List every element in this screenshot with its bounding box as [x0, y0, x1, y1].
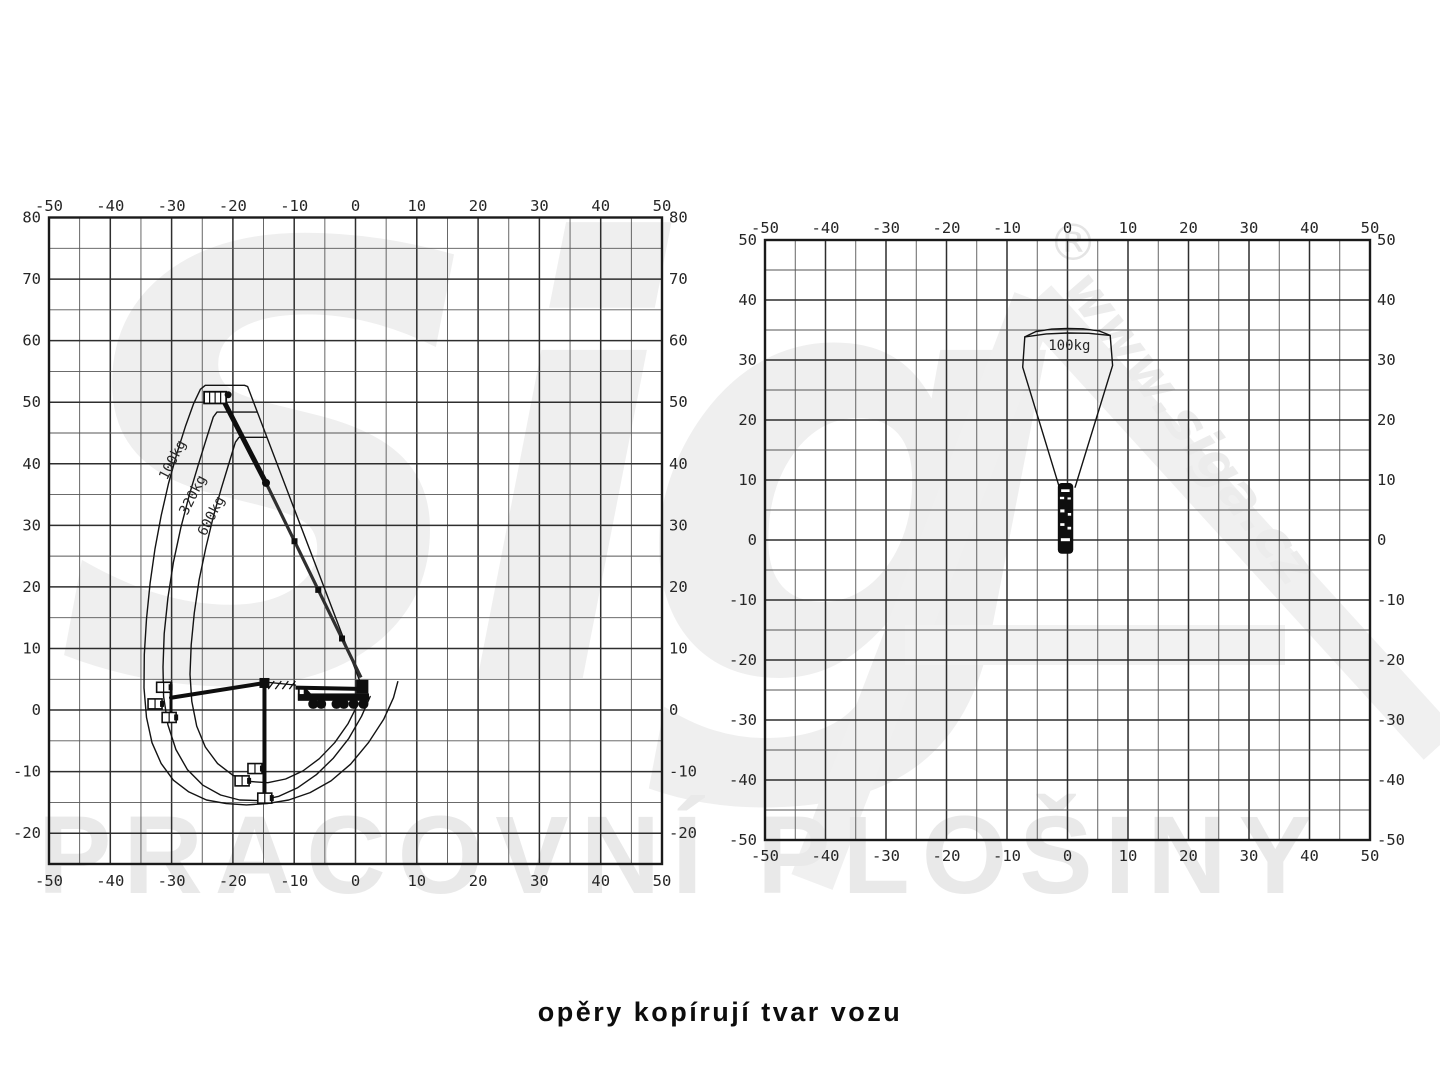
- y-tick-left: 60: [22, 332, 41, 350]
- y-tick-right: -30: [1377, 711, 1405, 729]
- load-label: 600kg: [195, 494, 228, 539]
- x-tick-bottom: 40: [591, 872, 610, 890]
- x-tick-top: 30: [530, 197, 549, 215]
- x-tick-top: 10: [407, 197, 426, 215]
- side-view-chart: -50-50-40-40-30-30-20-20-10-100010102020…: [13, 197, 697, 890]
- y-tick-left: 40: [738, 291, 757, 309]
- basket-mount: [260, 766, 264, 772]
- x-tick-top: -30: [872, 219, 900, 237]
- curve-320kg: [163, 412, 370, 800]
- y-tick-left: -10: [13, 763, 41, 781]
- y-tick-right: 40: [1377, 291, 1396, 309]
- truck-detail: [1068, 497, 1071, 499]
- curve-labels: 100kg: [1048, 338, 1090, 354]
- x-tick-bottom: -20: [933, 847, 961, 865]
- x-tick-bottom: -30: [872, 847, 900, 865]
- basket-mount: [247, 778, 251, 784]
- y-tick-left: 70: [22, 270, 41, 288]
- x-tick-top: -20: [219, 197, 247, 215]
- load-label: 100kg: [156, 438, 189, 483]
- x-tick-bottom: -30: [158, 872, 186, 890]
- x-tick-bottom: -10: [280, 872, 308, 890]
- y-tick-right: 80: [669, 209, 688, 227]
- top-view-chart: -50-50-40-40-30-30-20-20-10-100010102020…: [729, 219, 1405, 865]
- y-tick-left: 20: [738, 411, 757, 429]
- truck-detail: [1061, 489, 1069, 492]
- y-tick-right: 0: [1377, 531, 1386, 549]
- y-tick-right: -20: [669, 824, 697, 842]
- x-tick-bottom: -50: [751, 847, 779, 865]
- y-tick-left: -20: [729, 651, 757, 669]
- diagrams: -50-50-40-40-30-30-20-20-10-100010102020…: [0, 0, 1440, 1080]
- x-tick-bottom: -40: [812, 847, 840, 865]
- jib-joint: [259, 678, 269, 688]
- stowed-boom: [295, 688, 358, 689]
- truck-top-view: [1058, 483, 1073, 554]
- y-tick-left: -20: [13, 824, 41, 842]
- y-tick-left: 30: [738, 351, 757, 369]
- truck-detail: [1060, 497, 1064, 499]
- y-tick-right: -20: [1377, 651, 1405, 669]
- turret: [356, 680, 368, 694]
- truck-detail: [1061, 538, 1070, 541]
- y-tick-right: 0: [669, 701, 678, 719]
- y-tick-right: 10: [669, 639, 688, 657]
- x-tick-bottom: 30: [1240, 847, 1259, 865]
- y-tick-left: -40: [729, 771, 757, 789]
- x-tick-bottom: 50: [1361, 847, 1380, 865]
- y-tick-right: 40: [669, 455, 688, 473]
- y-tick-left: 30: [22, 516, 41, 534]
- x-tick-bottom: -10: [993, 847, 1021, 865]
- y-tick-left: 40: [22, 455, 41, 473]
- basket-mount: [174, 714, 178, 720]
- x-tick-bottom: -20: [219, 872, 247, 890]
- x-tick-top: -10: [280, 197, 308, 215]
- y-tick-right: 50: [669, 393, 688, 411]
- y-tick-right: -40: [1377, 771, 1405, 789]
- y-tick-right: 20: [669, 578, 688, 596]
- basket-mount: [270, 795, 274, 801]
- x-tick-top: -20: [933, 219, 961, 237]
- x-tick-bottom: 10: [1119, 847, 1138, 865]
- x-tick-top: -40: [812, 219, 840, 237]
- y-tick-right: 10: [1377, 471, 1396, 489]
- y-tick-left: 50: [22, 393, 41, 411]
- x-tick-top: -30: [158, 197, 186, 215]
- basket-mount: [169, 684, 173, 690]
- side-arm: [171, 683, 264, 698]
- x-tick-top: 40: [591, 197, 610, 215]
- y-tick-right: 30: [669, 516, 688, 534]
- x-tick-top: 0: [351, 197, 360, 215]
- boom-section-joint: [339, 636, 345, 642]
- boom-section-joint: [292, 538, 298, 544]
- y-tick-right: 60: [669, 332, 688, 350]
- boom-elbow-joint: [262, 479, 270, 487]
- x-tick-bottom: 10: [407, 872, 426, 890]
- x-tick-bottom: 40: [1300, 847, 1319, 865]
- basket-mount: [160, 701, 164, 707]
- top-vehicle: [1058, 483, 1073, 554]
- platform-link: [225, 391, 232, 398]
- y-tick-left: -10: [729, 591, 757, 609]
- x-tick-top: -40: [96, 197, 124, 215]
- grid: [49, 218, 662, 864]
- x-tick-top: 20: [469, 197, 488, 215]
- truck-detail: [1068, 513, 1071, 516]
- x-tick-top: 30: [1240, 219, 1259, 237]
- x-tick-top: 20: [1179, 219, 1198, 237]
- x-tick-bottom: 0: [1063, 847, 1072, 865]
- y-tick-left: -30: [729, 711, 757, 729]
- x-tick-bottom: 0: [351, 872, 360, 890]
- y-tick-left: -50: [729, 831, 757, 849]
- link-tick: [275, 681, 281, 689]
- y-tick-right: 20: [1377, 411, 1396, 429]
- truck-detail: [1060, 509, 1064, 512]
- x-tick-top: 0: [1063, 219, 1072, 237]
- y-tick-right: 30: [1377, 351, 1396, 369]
- x-tick-bottom: 20: [1179, 847, 1198, 865]
- y-tick-left: 10: [738, 471, 757, 489]
- y-tick-left: 0: [748, 531, 757, 549]
- y-tick-right: 50: [1377, 231, 1396, 249]
- x-tick-bottom: 50: [653, 872, 672, 890]
- y-tick-right: 70: [669, 270, 688, 288]
- boom-section-joint: [315, 587, 321, 593]
- truck-detail: [1060, 523, 1064, 526]
- y-tick-left: 10: [22, 639, 41, 657]
- cab-window: [300, 689, 304, 694]
- x-tick-top: 10: [1119, 219, 1138, 237]
- y-tick-left: 50: [738, 231, 757, 249]
- x-tick-bottom: 20: [469, 872, 488, 890]
- link-tick: [282, 681, 288, 689]
- x-tick-bottom: -50: [35, 872, 63, 890]
- load-label: 100kg: [1048, 338, 1090, 354]
- page: Sig ® www.siga.cz PRACOVNÍ PLOŠINY -50-5…: [0, 0, 1440, 1080]
- x-tick-top: -10: [993, 219, 1021, 237]
- x-tick-bottom: -40: [96, 872, 124, 890]
- y-tick-left: 80: [22, 209, 41, 227]
- truck-detail: [1068, 527, 1072, 530]
- y-tick-right: -10: [1377, 591, 1405, 609]
- caption-text: opěry kopírují tvar vozu: [0, 997, 1440, 1028]
- x-tick-bottom: 30: [530, 872, 549, 890]
- y-tick-left: 0: [32, 701, 41, 719]
- x-tick-top: 40: [1300, 219, 1319, 237]
- y-tick-left: 20: [22, 578, 41, 596]
- y-tick-right: -50: [1377, 831, 1405, 849]
- y-tick-right: -10: [669, 763, 697, 781]
